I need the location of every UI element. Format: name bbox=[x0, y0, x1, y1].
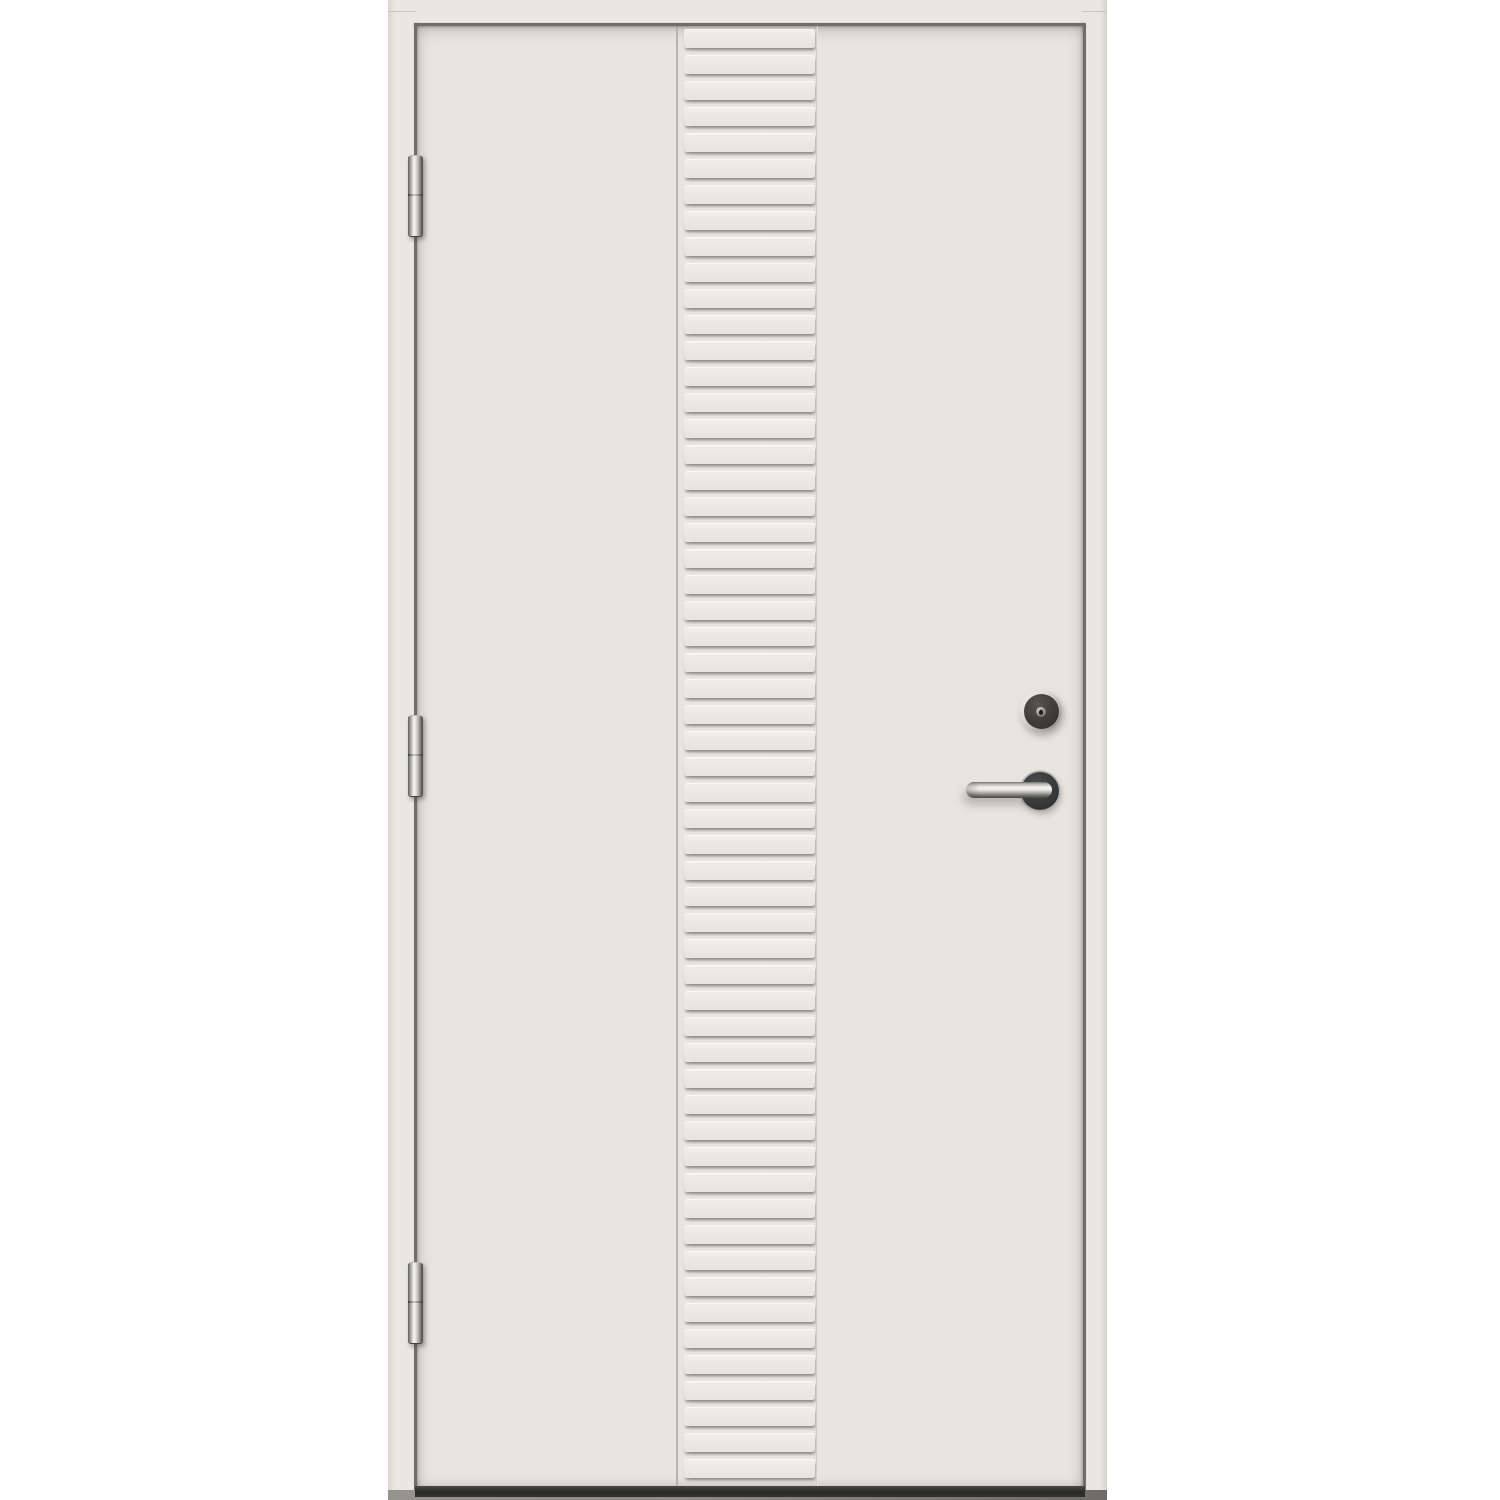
panel-slat bbox=[684, 809, 815, 828]
panel-slat bbox=[684, 445, 815, 464]
panel-slat bbox=[684, 1147, 815, 1166]
product-photo-stage bbox=[0, 0, 1500, 1500]
panel-slat bbox=[684, 965, 815, 984]
panel-slat bbox=[684, 1225, 815, 1244]
hinge-bottom bbox=[408, 1262, 423, 1344]
panel-slat bbox=[684, 263, 815, 282]
panel-slat bbox=[684, 1277, 815, 1296]
panel-slat bbox=[684, 1017, 815, 1036]
panel-slat bbox=[684, 1095, 815, 1114]
keyhole-icon bbox=[1036, 707, 1046, 717]
panel-slat bbox=[684, 393, 815, 412]
panel-slat bbox=[684, 1251, 815, 1270]
frame-head-seam-right bbox=[1082, 11, 1107, 12]
panel-slat bbox=[684, 913, 815, 932]
door-threshold bbox=[415, 1486, 1085, 1497]
panel-slat bbox=[684, 1407, 815, 1426]
panel-slat bbox=[684, 1329, 815, 1348]
panel-slat bbox=[684, 81, 815, 100]
panel-slat bbox=[684, 211, 815, 230]
panel-slat bbox=[684, 419, 815, 438]
panel-slat bbox=[684, 757, 815, 776]
panel-slat bbox=[684, 653, 815, 672]
panel-slat bbox=[684, 1069, 815, 1088]
panel-slat bbox=[684, 107, 815, 126]
panel-slat bbox=[684, 1355, 815, 1374]
panel-slat bbox=[684, 29, 815, 48]
lock-cylinder-face bbox=[1024, 694, 1059, 729]
panel-slat bbox=[684, 783, 815, 802]
panel-slat bbox=[684, 1381, 815, 1400]
hinge-top bbox=[408, 155, 423, 237]
panel-slat bbox=[684, 237, 815, 256]
panel-slat bbox=[684, 1459, 815, 1478]
panel-slat bbox=[684, 601, 815, 620]
panel-slat bbox=[684, 1173, 815, 1192]
panel-slat bbox=[684, 1121, 815, 1140]
panel-slat bbox=[684, 627, 815, 646]
ribbed-panel bbox=[676, 26, 818, 1486]
panel-slat bbox=[684, 367, 815, 386]
panel-slat bbox=[684, 315, 815, 334]
lock-cylinder bbox=[1020, 690, 1062, 732]
panel-slat bbox=[684, 1199, 815, 1218]
panel-slat bbox=[684, 289, 815, 308]
panel-slat bbox=[684, 523, 815, 542]
panel-slat bbox=[684, 1303, 815, 1322]
panel-slat bbox=[684, 731, 815, 750]
panel-slat bbox=[684, 939, 815, 958]
panel-slat bbox=[684, 341, 815, 360]
panel-slat bbox=[684, 471, 815, 490]
panel-slat bbox=[684, 55, 815, 74]
panel-slat bbox=[684, 705, 815, 724]
panel-slat bbox=[684, 991, 815, 1010]
frame-reveal-gap-right bbox=[1083, 23, 1086, 1490]
panel-slat bbox=[684, 549, 815, 568]
panel-slat bbox=[684, 159, 815, 178]
hinge-middle bbox=[408, 715, 423, 797]
frame-head-seam-left bbox=[388, 11, 416, 12]
panel-slat bbox=[684, 133, 815, 152]
panel-slat bbox=[684, 679, 815, 698]
panel-slat bbox=[684, 835, 815, 854]
panel-slat bbox=[684, 1433, 815, 1452]
handle-lever bbox=[966, 782, 1052, 798]
panel-slat bbox=[684, 1043, 815, 1062]
panel-slat bbox=[684, 185, 815, 204]
frame-reveal-gap-top bbox=[414, 23, 1085, 26]
panel-slat bbox=[684, 575, 815, 594]
panel-slat bbox=[684, 497, 815, 516]
panel-slat bbox=[684, 861, 815, 880]
panel-slat bbox=[684, 887, 815, 906]
